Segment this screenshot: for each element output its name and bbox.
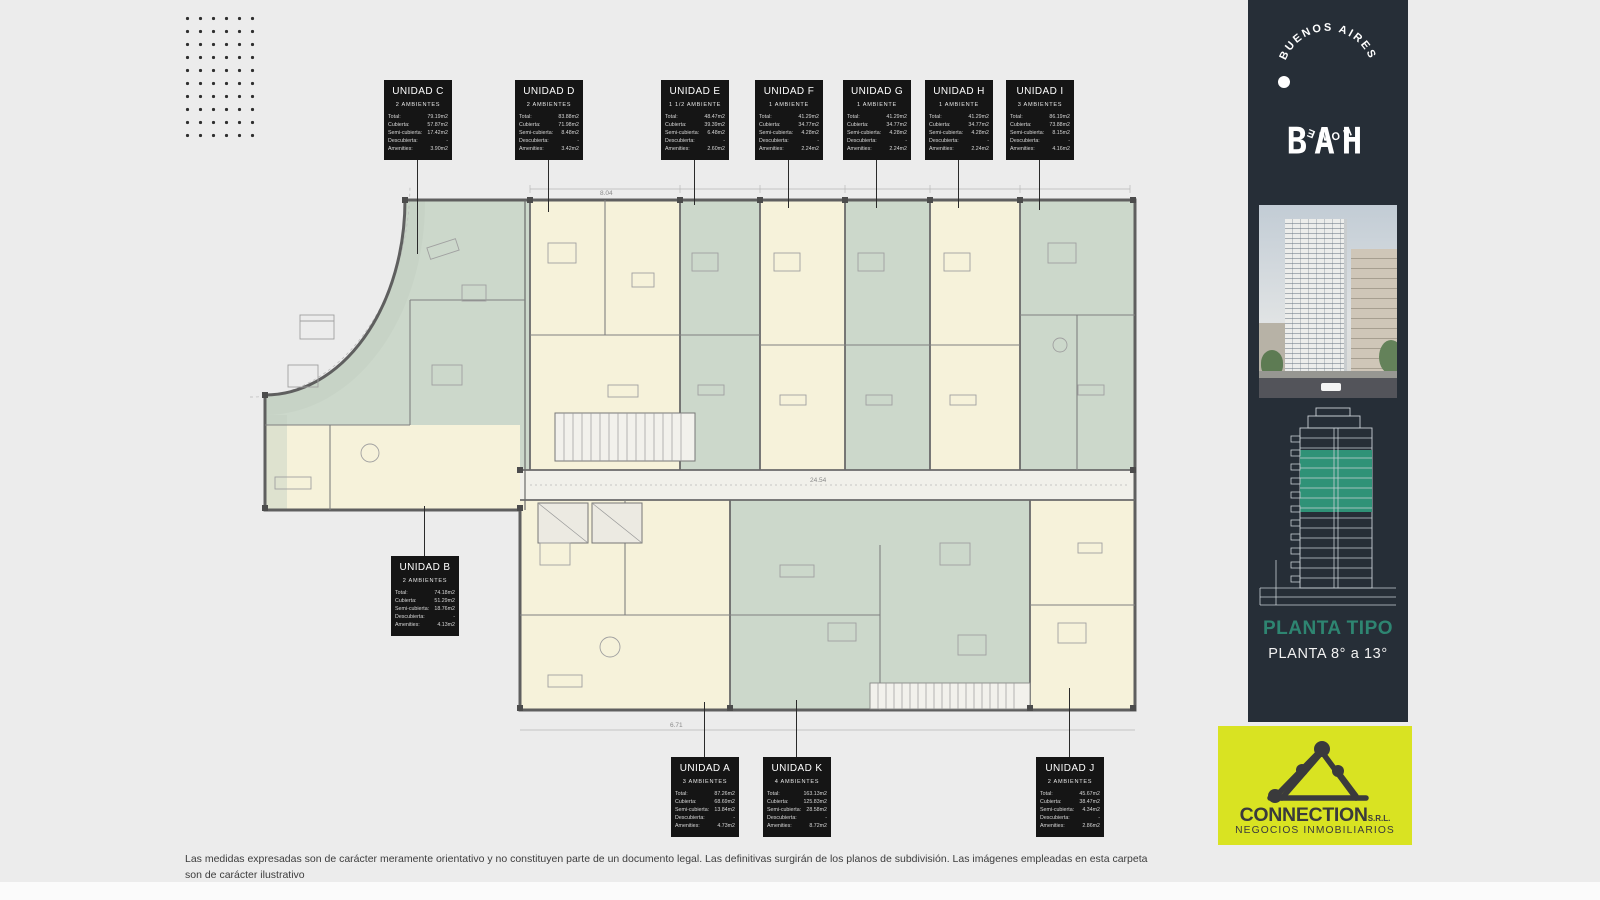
field-value: 4.73m2	[717, 823, 735, 831]
field-value: 125.83m2	[803, 799, 827, 807]
unit-title: UNIDAD C	[388, 86, 448, 97]
leader-line-a	[704, 702, 705, 757]
legal-disclaimer: Las medidas expresadas son de carácter m…	[185, 851, 1148, 884]
field-label: Semi-cubierta:	[519, 130, 553, 138]
field-label: Semi-cubierta:	[395, 606, 429, 614]
connection-tagline: NEGOCIOS INMOBILIARIOS	[1218, 825, 1412, 836]
field-value: 28.58m2	[806, 807, 827, 815]
field-value: 2.24m2	[889, 146, 907, 154]
field-value: -	[453, 614, 455, 622]
field-label: Amenities:	[847, 146, 872, 154]
field-label: Total:	[665, 114, 678, 122]
unit-label-c: UNIDAD C 2 AMBIENTES Total:79.19m2 Cubie…	[384, 80, 452, 160]
field-label: Semi-cubierta:	[1010, 130, 1044, 138]
field-value: 45.67m2	[1079, 791, 1100, 799]
field-value: 68.69m2	[714, 799, 735, 807]
field-value: 2.24m2	[801, 146, 819, 154]
render-tower	[1285, 219, 1347, 371]
bottom-white-strip	[0, 882, 1600, 900]
unit-ambientes: 2 AMBIENTES	[388, 102, 448, 108]
field-value: 83.88m2	[558, 114, 579, 122]
field-value: 4.13m2	[437, 622, 455, 630]
field-label: Descubierta:	[1010, 138, 1040, 146]
field-value: 13.84m2	[714, 807, 735, 815]
field-label: Semi-cubierta:	[388, 130, 422, 138]
field-label: Cubierta:	[767, 799, 789, 807]
field-label: Amenities:	[675, 823, 700, 831]
field-value: 87.26m2	[714, 791, 735, 799]
field-label: Amenities:	[665, 146, 690, 154]
unit-label-i: UNIDAD I 3 AMBIENTES Total:86.19m2 Cubie…	[1006, 80, 1074, 160]
field-label: Total:	[1010, 114, 1023, 122]
unit-label-d: UNIDAD D 2 AMBIENTES Total:83.88m2 Cubie…	[515, 80, 583, 160]
field-value: 4.16m2	[1052, 146, 1070, 154]
field-value: -	[905, 138, 907, 146]
field-value: 34.77m2	[886, 122, 907, 130]
field-label: Cubierta:	[759, 122, 781, 130]
building-render-image	[1259, 205, 1397, 398]
field-value: 2.60m2	[707, 146, 725, 154]
field-value: 34.77m2	[968, 122, 989, 130]
field-label: Descubierta:	[388, 138, 418, 146]
field-value: 4.28m2	[971, 130, 989, 138]
field-value: 57.87m2	[427, 122, 448, 130]
field-value: 38.47m2	[1079, 799, 1100, 807]
plan-floors-subtitle: PLANTA 8° a 13°	[1248, 646, 1408, 662]
bah-logo-text: BAH	[1248, 121, 1408, 163]
field-value: 51.29m2	[434, 598, 455, 606]
brochure-page: 8.04 24.54 6.71	[0, 0, 1600, 900]
unit-ambientes: 3 AMBIENTES	[675, 779, 735, 785]
leader-line-k	[796, 700, 797, 757]
field-value: 3.42m2	[561, 146, 579, 154]
field-value: 41.29m2	[968, 114, 989, 122]
dim-top: 8.04	[600, 190, 613, 197]
field-value: 41.29m2	[886, 114, 907, 122]
field-label: Descubierta:	[929, 138, 959, 146]
field-value: -	[446, 138, 448, 146]
field-label: Amenities:	[1010, 146, 1035, 154]
field-label: Descubierta:	[847, 138, 877, 146]
field-label: Amenities:	[759, 146, 784, 154]
field-value: 3.90m2	[430, 146, 448, 154]
dim-bottom: 6.71	[670, 722, 683, 729]
unit-label-e: UNIDAD E 1 1/2 AMBIENTE Total:48.47m2 Cu…	[661, 80, 729, 160]
field-value: -	[987, 138, 989, 146]
field-label: Semi-cubierta:	[665, 130, 699, 138]
leader-line-j	[1069, 688, 1070, 757]
unit-ambientes: 1 AMBIENTE	[759, 102, 819, 108]
unit-region-h	[930, 200, 1020, 470]
corridor	[520, 470, 1135, 500]
unit-ambientes: 2 AMBIENTES	[519, 102, 579, 108]
plan-type-title: PLANTA TIPO	[1248, 618, 1408, 640]
field-label: Cubierta:	[929, 122, 951, 130]
svg-text:BUENOS AIRES: BUENOS AIRES	[1277, 22, 1378, 62]
field-value: 41.29m2	[798, 114, 819, 122]
connection-icon	[1218, 730, 1412, 808]
field-value: 8.15m2	[1052, 130, 1070, 138]
field-value: 163.13m2	[803, 791, 827, 799]
field-value: 73.88m2	[1049, 122, 1070, 130]
field-value: 4.28m2	[889, 130, 907, 138]
unit-title: UNIDAD E	[665, 86, 725, 97]
disclaimer-line-2: son de carácter ilustrativo	[185, 867, 1148, 883]
field-label: Cubierta:	[675, 799, 697, 807]
unit-region-f	[760, 200, 845, 470]
connection-suffix: S.R.L.	[1368, 814, 1391, 823]
unit-ambientes: 2 AMBIENTES	[1040, 779, 1100, 785]
unit-regions	[260, 195, 1140, 715]
field-value: 8.72m2	[809, 823, 827, 831]
field-value: 18.76m2	[434, 606, 455, 614]
field-value: 79.19m2	[427, 114, 448, 122]
field-label: Total:	[847, 114, 860, 122]
field-value: -	[825, 815, 827, 823]
field-value: 17.42m2	[427, 130, 448, 138]
field-value: -	[1068, 138, 1070, 146]
unit-label-j: UNIDAD J 2 AMBIENTES Total:45.67m2 Cubie…	[1036, 757, 1104, 837]
unit-title: UNIDAD G	[847, 86, 907, 97]
field-value: -	[1098, 815, 1100, 823]
field-value: 34.77m2	[798, 122, 819, 130]
render-sidewalk	[1259, 371, 1397, 378]
unit-title: UNIDAD B	[395, 562, 455, 573]
floor-plan: 8.04 24.54 6.71	[180, 185, 1180, 745]
unit-title: UNIDAD K	[767, 763, 827, 774]
unit-title: UNIDAD I	[1010, 86, 1070, 97]
field-label: Amenities:	[395, 622, 420, 630]
field-label: Cubierta:	[847, 122, 869, 130]
field-label: Total:	[1040, 791, 1053, 799]
leader-line-c	[417, 150, 418, 254]
unit-ambientes: 4 AMBIENTES	[767, 779, 827, 785]
field-label: Descubierta:	[519, 138, 549, 146]
leader-line-b	[424, 506, 425, 556]
field-value: -	[733, 815, 735, 823]
field-label: Amenities:	[519, 146, 544, 154]
field-value: 2.24m2	[971, 146, 989, 154]
field-label: Semi-cubierta:	[847, 130, 881, 138]
unit-label-a: UNIDAD A 3 AMBIENTES Total:87.26m2 Cubie…	[671, 757, 739, 837]
unit-label-f: UNIDAD F 1 AMBIENTE Total:41.29m2 Cubier…	[755, 80, 823, 160]
field-label: Cubierta:	[1010, 122, 1032, 130]
field-label: Amenities:	[767, 823, 792, 831]
field-value: 2.86m2	[1082, 823, 1100, 831]
field-value: 4.34m2	[1082, 807, 1100, 815]
unit-region-b	[265, 425, 520, 510]
unit-label-g: UNIDAD G 1 AMBIENTE Total:41.29m2 Cubier…	[843, 80, 911, 160]
field-value: 8.48m2	[561, 130, 579, 138]
dim-corridor: 24.54	[810, 477, 827, 484]
unit-title: UNIDAD J	[1040, 763, 1100, 774]
unit-title: UNIDAD H	[929, 86, 989, 97]
field-label: Descubierta:	[395, 614, 425, 622]
unit-ambientes: 1 AMBIENTE	[929, 102, 989, 108]
field-label: Total:	[388, 114, 401, 122]
field-value: 71.98m2	[558, 122, 579, 130]
field-value: 86.19m2	[1049, 114, 1070, 122]
render-car	[1321, 383, 1341, 391]
field-label: Semi-cubierta:	[675, 807, 709, 815]
field-value: -	[817, 138, 819, 146]
field-value: -	[723, 138, 725, 146]
field-label: Amenities:	[1040, 823, 1065, 831]
field-label: Cubierta:	[519, 122, 541, 130]
field-label: Total:	[759, 114, 772, 122]
unit-label-b: UNIDAD B 2 AMBIENTES Total:74.18m2 Cubie…	[391, 556, 459, 636]
field-label: Total:	[519, 114, 532, 122]
unit-ambientes: 1 AMBIENTE	[847, 102, 907, 108]
field-label: Cubierta:	[665, 122, 687, 130]
unit-title: UNIDAD F	[759, 86, 819, 97]
field-label: Total:	[675, 791, 688, 799]
unit-title: UNIDAD D	[519, 86, 579, 97]
field-label: Total:	[929, 114, 942, 122]
field-label: Semi-cubierta:	[1040, 807, 1074, 815]
field-value: 74.18m2	[434, 590, 455, 598]
field-label: Descubierta:	[767, 815, 797, 823]
ring-dot	[1278, 76, 1290, 88]
unit-ambientes: 1 1/2 AMBIENTE	[665, 102, 725, 108]
field-label: Total:	[767, 791, 780, 799]
field-value: -	[577, 138, 579, 146]
field-label: Descubierta:	[759, 138, 789, 146]
render-tree	[1379, 340, 1397, 374]
connection-name-text: CONNECTION	[1240, 804, 1368, 826]
unit-title: UNIDAD A	[675, 763, 735, 774]
brand-sidebar: BUENOS AIRES HOME BAH	[1248, 0, 1408, 722]
field-label: Amenities:	[388, 146, 413, 154]
field-label: Semi-cubierta:	[767, 807, 801, 815]
field-label: Descubierta:	[675, 815, 705, 823]
field-label: Cubierta:	[1040, 799, 1062, 807]
unit-label-k: UNIDAD K 4 AMBIENTES Total:163.13m2 Cubi…	[763, 757, 831, 837]
unit-label-h: UNIDAD H 1 AMBIENTE Total:41.29m2 Cubier…	[925, 80, 993, 160]
field-label: Descubierta:	[665, 138, 695, 146]
disclaimer-line-1: Las medidas expresadas son de carácter m…	[185, 851, 1148, 867]
field-label: Descubierta:	[1040, 815, 1070, 823]
field-value: 6.48m2	[707, 130, 725, 138]
unit-region-g	[845, 200, 930, 470]
field-label: Total:	[395, 590, 408, 598]
connection-name: CONNECTIONS.R.L.	[1218, 804, 1412, 827]
building-elevation-diagram	[1248, 400, 1408, 615]
field-label: Semi-cubierta:	[929, 130, 963, 138]
highlighted-floors-band	[1300, 450, 1372, 512]
field-label: Cubierta:	[388, 122, 410, 130]
field-value: 4.28m2	[801, 130, 819, 138]
unit-ambientes: 2 AMBIENTES	[395, 578, 455, 584]
field-value: 39.39m2	[704, 122, 725, 130]
dot-grid-decoration	[181, 12, 255, 138]
field-label: Amenities:	[929, 146, 954, 154]
ring-text-top: BUENOS AIRES	[1277, 22, 1378, 62]
field-label: Cubierta:	[395, 598, 417, 606]
field-label: Semi-cubierta:	[759, 130, 793, 138]
connection-logo-box: CONNECTIONS.R.L. NEGOCIOS INMOBILIARIOS	[1218, 726, 1412, 845]
unit-ambientes: 3 AMBIENTES	[1010, 102, 1070, 108]
field-value: 48.47m2	[704, 114, 725, 122]
